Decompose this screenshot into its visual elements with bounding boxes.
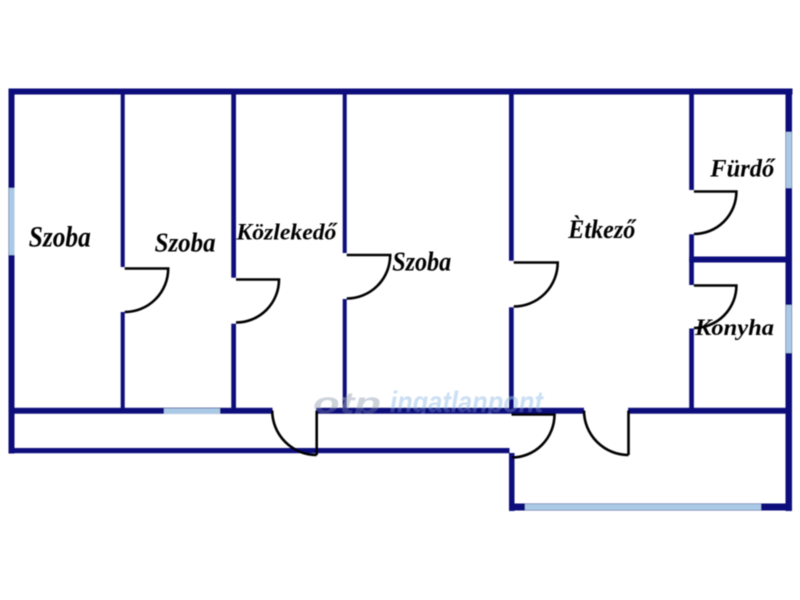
svg-text:Közlekedő: Közlekedő xyxy=(235,219,337,245)
svg-text:Szoba: Szoba xyxy=(29,220,91,253)
svg-text:Szoba: Szoba xyxy=(155,226,216,257)
svg-text:Fürdő: Fürdő xyxy=(709,155,775,182)
svg-text:Ètkező: Ètkező xyxy=(567,215,637,244)
svg-text:Szoba: Szoba xyxy=(392,246,451,277)
svg-text:Konyha: Konyha xyxy=(694,315,774,340)
